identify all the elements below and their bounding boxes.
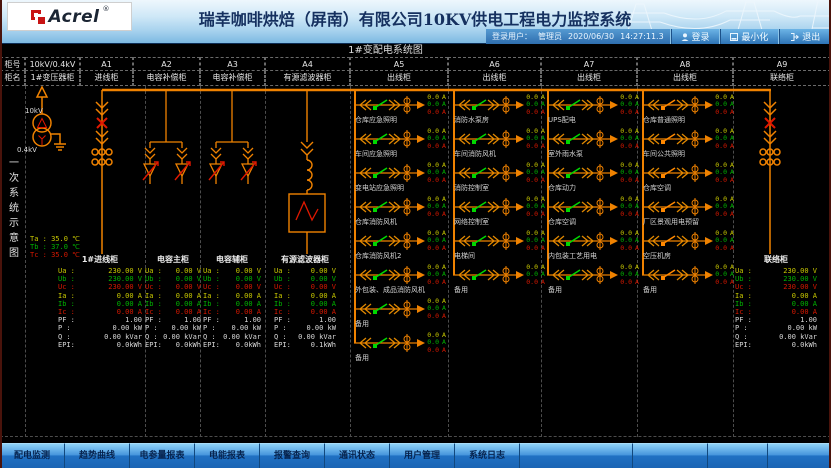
feeder-phase-values: 0.00.00.0 <box>523 128 538 150</box>
feeder-phase-units: AAA <box>730 264 734 286</box>
panel-row: PF :1.00 <box>735 316 817 324</box>
nav-tab-7[interactable]: 用户管理 <box>390 443 455 468</box>
phase-value: 0.0 <box>617 279 632 286</box>
panel-row-label: Ua : <box>145 267 162 275</box>
feeder-label: 备用 <box>454 285 468 295</box>
feeder-phase-units: AAA <box>442 298 446 320</box>
panel-row-label: Q : <box>735 333 748 341</box>
panel-row-value: 1.00 <box>319 316 336 324</box>
feeder-label: 变电站应急照明 <box>355 183 404 193</box>
feeder-row-A6-2: 0.00.00.0AAA车间消防风机 <box>453 129 549 161</box>
feeder-label: 备用 <box>548 285 562 295</box>
feeder-row-A6-4: 0.00.00.0AAA网络控制室 <box>453 197 549 229</box>
feeder-label: 备用 <box>355 353 369 363</box>
feeder-label: 仓库动力 <box>548 183 576 193</box>
phase-value: 0.0 <box>712 245 727 252</box>
feeder-phase-units: AAA <box>541 264 545 286</box>
phase-value: 0.0 <box>523 143 538 150</box>
feeder-phase-units: AAA <box>635 128 639 150</box>
panel-row: Ib :0.00 A <box>145 300 201 308</box>
panel-row-label: PF : <box>203 316 220 324</box>
panel-row-value: 1.00 <box>800 316 817 324</box>
panel-row: Ic :0.00 A <box>203 308 261 316</box>
panel-row: Ub :0.00 V <box>274 275 336 283</box>
phase-unit: A <box>730 279 734 286</box>
phase-unit: A <box>730 177 734 184</box>
feeder-row-A5-6: 0.00.00.0AAA外包装、成品消防风机 <box>354 265 450 297</box>
cabinet-no-A3: A3 <box>200 57 265 71</box>
feeder-phase-values: 0.00.00.0 <box>712 264 727 286</box>
header: Acrel ® 瑞幸咖啡烘焙（屏南）有限公司10KV供电工程电力监控系统 登录用… <box>0 0 831 44</box>
panel-row-label: Ub : <box>58 275 75 283</box>
panel-row-label: EPI: <box>203 341 220 349</box>
phase-unit: A <box>442 347 446 354</box>
phase-unit: A <box>635 109 639 116</box>
cabinet-name-A4: 有源滤波器柜 <box>265 71 350 86</box>
feeder-phase-units: AAA <box>635 196 639 218</box>
panel-row: Ib :0.00 A <box>203 300 261 308</box>
panel-row-value: 0.00 kW <box>112 324 142 332</box>
minimize-button-label: 最小化 <box>741 30 768 43</box>
cabinet-no-A4: A4 <box>265 57 350 71</box>
feeder-phase-values: 0.00.00.0 <box>424 332 439 354</box>
feeder-phase-values: 0.00.00.0 <box>424 162 439 184</box>
panel-row-label: PF : <box>735 316 752 324</box>
panel-row-value: 0.00 V <box>176 283 201 291</box>
panel-row: Ib :0.00 A <box>274 300 336 308</box>
feeder-phase-units: AAA <box>730 94 734 116</box>
nav-tab-empty-10[interactable] <box>633 443 708 468</box>
left-edge-frame <box>0 0 2 468</box>
panel-P2: 电容主柜Ua :0.00 VUb :0.00 VUc :0.00 VIa :0.… <box>145 254 201 349</box>
feeder-row-A6-6: 0.00.00.0AAA备用 <box>453 265 549 297</box>
phase-value: 0.0 <box>617 211 632 218</box>
panel-row: EPI:0.0kWh <box>735 341 817 349</box>
feeder-phase-values: 0.00.00.0 <box>424 94 439 116</box>
feeder-row-A7-1: 0.00.00.0AAAUPS配电 <box>547 95 643 127</box>
phase-value: 0.0 <box>712 109 727 116</box>
phase-value: 0.0 <box>424 143 439 150</box>
panel-row-value: 1.00 <box>184 316 201 324</box>
feeder-phase-values: 0.00.00.0 <box>523 264 538 286</box>
feeder-phase-units: AAA <box>541 230 545 252</box>
feeder-row-A6-3: 0.00.00.0AAA消防控制室 <box>453 163 549 195</box>
phase-value: 0.0 <box>523 245 538 252</box>
panel-row-value: 0.00 A <box>176 308 201 316</box>
feeder-row-A8-4: 0.00.00.0AAA厂区景观用电预留 <box>642 197 738 229</box>
panel-row-value: 230.00 V <box>783 275 817 283</box>
feeder-row-A8-5: 0.00.00.0AAA空压机房 <box>642 231 738 263</box>
cabinet-name-header: 柜名 <box>0 71 25 86</box>
feeder-label: 外包装、成品消防风机 <box>355 285 425 295</box>
feeder-phase-units: AAA <box>730 128 734 150</box>
panel-row: EPI:0.0kWh <box>58 341 142 349</box>
panel-row-label: Ua : <box>58 267 75 275</box>
panel-row-value: 0.00 kVar <box>163 333 201 341</box>
nav-tab-4[interactable]: 电能报表 <box>195 443 260 468</box>
phase-value: 0.0 <box>523 211 538 218</box>
panel-row: Uc :0.00 V <box>145 283 201 291</box>
panel-row-value: 0.00 A <box>792 292 817 300</box>
panel-row-value: 0.00 A <box>176 300 201 308</box>
panel-title: 电容主柜 <box>145 254 201 265</box>
panel-row-value: 0.00 V <box>176 275 201 283</box>
panel-row: PF :1.00 <box>58 316 142 324</box>
panel-row-value: 0.00 kW <box>787 324 817 332</box>
feeder-row-A8-3: 0.00.00.0AAA仓库空调 <box>642 163 738 195</box>
panel-row: Ub :230.00 V <box>735 275 817 283</box>
capacitor-bank-symbol-a3 <box>216 90 248 142</box>
feeder-row-A5-7: 0.00.00.0AAA备用 <box>354 299 450 331</box>
feeder-label: 仓库空调 <box>643 183 671 193</box>
nav-tab-2[interactable]: 趋势曲线 <box>65 443 130 468</box>
panel-row-value: 1.00 <box>244 316 261 324</box>
panel-P4: 有源滤波器柜Ua :0.00 VUb :0.00 VUc :0.00 VIa :… <box>274 254 336 349</box>
transformer-symbol: 10kV 0.4kV <box>17 87 66 154</box>
panel-P1: 1#进线柜Ua :230.00 VUb :230.00 VUc :230.00 … <box>58 254 142 349</box>
feeder-row-A5-8: 0.00.00.0AAA备用 <box>354 333 450 365</box>
panel-row-label: Ub : <box>203 275 220 283</box>
nav-tab-1[interactable]: 配电监测 <box>0 443 65 468</box>
nav-tab-empty-9[interactable] <box>520 443 633 468</box>
minimize-icon <box>730 33 738 41</box>
panel-row-label: Ib : <box>58 300 75 308</box>
panel-row-label: Q : <box>145 333 158 341</box>
panel-row-label: Q : <box>58 333 71 341</box>
brand-registered-mark: ® <box>102 5 109 13</box>
phase-value: 0.0 <box>617 245 632 252</box>
cabinet-name-A6: 出线柜 <box>448 71 541 86</box>
panel-row: Ib :0.00 A <box>735 300 817 308</box>
panel-row-label: Ua : <box>274 267 291 275</box>
panel-row: P :0.00 kW <box>203 324 261 332</box>
nav-tab-3[interactable]: 电参量报表 <box>130 443 195 468</box>
phase-unit: A <box>442 143 446 150</box>
panel-row: Ia :0.00 A <box>735 292 817 300</box>
nav-tab-empty-11[interactable] <box>708 443 768 468</box>
feeder-label: UPS配电 <box>548 115 576 125</box>
feeder-row-A7-6: 0.00.00.0AAA备用 <box>547 265 643 297</box>
nav-tab-empty-12[interactable] <box>768 443 831 468</box>
panel-row-value: 0.00 V <box>311 267 336 275</box>
panel-row-label: Uc : <box>58 283 75 291</box>
feeder-label: 空压机房 <box>643 251 671 261</box>
cabinet-name-A7: 出线柜 <box>541 71 637 86</box>
panel-row-label: P : <box>735 324 748 332</box>
exit-icon <box>790 33 799 41</box>
phase-unit: A <box>635 245 639 252</box>
panel-row-value: 0.00 A <box>117 292 142 300</box>
panel-row: P :0.00 kW <box>145 324 201 332</box>
panel-row: Uc :0.00 V <box>274 283 336 291</box>
cabinet-no-A5: A5 <box>350 57 448 71</box>
feeder-label: 消防控制室 <box>454 183 489 193</box>
feeder-phase-units: AAA <box>541 94 545 116</box>
panel-row: Uc :230.00 V <box>58 283 142 291</box>
phase-unit: A <box>730 109 734 116</box>
minimize-button[interactable]: 最小化 <box>719 29 778 44</box>
panel-row-value: 230.00 V <box>783 283 817 291</box>
panel-row: PF :1.00 <box>274 316 336 324</box>
panel-row: Ia :0.00 A <box>58 292 142 300</box>
panel-P3: 电容辅柜Ua :0.00 VUb :0.00 VUc :0.00 VIa :0.… <box>203 254 261 349</box>
nav-tab-8[interactable]: 系统日志 <box>455 443 520 468</box>
panel-row-value: 0.00 A <box>117 300 142 308</box>
panel-row-label: Ia : <box>145 292 162 300</box>
phase-value: 0.0 <box>424 347 439 354</box>
phase-unit: A <box>730 143 734 150</box>
cabinet-name-A3: 电容补偿柜 <box>200 71 265 86</box>
feeder-label: 消防水泵房 <box>454 115 489 125</box>
feeder-phase-values: 0.00.00.0 <box>712 162 727 184</box>
panel-row: Uc :230.00 V <box>735 283 817 291</box>
one-line-diagram: 一次系统示意图 <box>0 86 831 437</box>
panel-row-value: 0.00 A <box>236 300 261 308</box>
tie-breaker-symbol <box>760 90 780 254</box>
panel-row-value: 0.00 V <box>236 267 261 275</box>
feeder-phase-units: AAA <box>442 264 446 286</box>
panel-title: 有源滤波器柜 <box>274 254 336 265</box>
feeder-phase-units: AAA <box>635 264 639 286</box>
feeder-phase-units: AAA <box>541 128 545 150</box>
diagram-title: 1#变配电系统图 <box>348 45 483 56</box>
panel-row-label: PF : <box>58 316 75 324</box>
feeder-label: 仓库消防风机 <box>355 217 397 227</box>
panel-row: Uc :0.00 V <box>203 283 261 291</box>
panel-row-label: PF : <box>145 316 162 324</box>
panel-row-label: Ib : <box>145 300 162 308</box>
phase-value: 0.0 <box>523 109 538 116</box>
panel-row: Ub :0.00 V <box>145 275 201 283</box>
feeder-phase-units: AAA <box>635 230 639 252</box>
panel-row-value: 0.00 kW <box>171 324 201 332</box>
feeder-phase-units: AAA <box>730 162 734 184</box>
app-window: Acrel ® 瑞幸咖啡烘焙（屏南）有限公司10KV供电工程电力监控系统 登录用… <box>0 0 831 468</box>
feeder-phase-values: 0.00.00.0 <box>523 94 538 116</box>
panel-row-label: Ia : <box>203 292 220 300</box>
feeder-phase-values: 0.00.00.0 <box>424 128 439 150</box>
login-user-name: 管理员 <box>538 31 562 42</box>
transformer-lv-label: 0.4kV <box>17 146 37 154</box>
phase-value: 0.0 <box>712 211 727 218</box>
panel-row-value: 230.00 V <box>108 283 142 291</box>
current-date: 2020/06/30 <box>568 32 614 41</box>
panel-row-label: Ib : <box>274 300 291 308</box>
phase-unit: A <box>541 279 545 286</box>
cabinet-no-A8: A8 <box>637 57 733 71</box>
panel-row-label: EPI: <box>58 341 75 349</box>
nav-tab-6[interactable]: 通讯状态 <box>325 443 390 468</box>
panel-row-label: Ic : <box>274 308 291 316</box>
phase-unit: A <box>541 211 545 218</box>
cabinet-name-A2: 电容补偿柜 <box>133 71 200 86</box>
phase-unit: A <box>635 211 639 218</box>
panel-row: Ia :0.00 A <box>145 292 201 300</box>
feeder-phase-values: 0.00.00.0 <box>523 162 538 184</box>
login-button-label: 登录 <box>692 30 710 43</box>
feeder-label: 备用 <box>355 319 369 329</box>
acrel-logo-icon <box>30 9 46 25</box>
feeder-label: 车间应急照明 <box>355 149 397 159</box>
panel-row-value: 0.0kWh <box>176 341 201 349</box>
feeder-phase-values: 0.00.00.0 <box>424 230 439 252</box>
panel-row-label: Ic : <box>145 308 162 316</box>
feeder-row-A8-1: 0.00.00.0AAA仓库普通照明 <box>642 95 738 127</box>
cabinet-table: 柜号 10kV/0.4kVA1A2A3A4A5A6A7A8A9 柜名 1#变压器… <box>0 57 831 86</box>
phase-value: 0.0 <box>712 279 727 286</box>
panel-row: P :0.00 kW <box>58 324 142 332</box>
feeder-row-A6-5: 0.00.00.0AAA电梯间 <box>453 231 549 263</box>
panel-row: Ua :0.00 V <box>203 267 261 275</box>
diagram-title-bar: 1#变配电系统图 <box>0 44 831 57</box>
panel-row: Ic :0.00 A <box>145 308 201 316</box>
panel-row: Ua :230.00 V <box>735 267 817 275</box>
panel-row-value: 0.00 kW <box>306 324 336 332</box>
panel-row: Ua :0.00 V <box>274 267 336 275</box>
panel-row: P :0.00 kW <box>735 324 817 332</box>
panel-row: Q :0.00 kVar <box>203 333 261 341</box>
panel-row: EPI:0.1kWh <box>274 341 336 349</box>
phase-unit: A <box>635 143 639 150</box>
panel-row: Ic :0.00 A <box>735 308 817 316</box>
panel-row-value: 0.00 A <box>311 292 336 300</box>
phase-value: 0.0 <box>617 143 632 150</box>
cabinet-name-T: 1#变压器柜 <box>25 71 80 86</box>
feeder-phase-values: 0.00.00.0 <box>712 128 727 150</box>
phase-unit: A <box>635 279 639 286</box>
panel-row: Ic :0.00 A <box>58 308 142 316</box>
feeder-phase-units: AAA <box>442 128 446 150</box>
phase-value: 0.0 <box>424 177 439 184</box>
panel-row-value: 0.0kWh <box>117 341 142 349</box>
panel-row: Ia :0.00 A <box>274 292 336 300</box>
incoming-breaker-symbol <box>92 90 112 254</box>
phase-unit: A <box>541 143 545 150</box>
feeder-row-A6-1: 0.00.00.0AAA消防水泵房 <box>453 95 549 127</box>
feeder-label: 仓库应急照明 <box>355 115 397 125</box>
phase-unit: A <box>541 109 545 116</box>
exit-button[interactable]: 退出 <box>778 29 831 44</box>
login-user-label: 登录用户： <box>492 31 532 42</box>
panel-row: Ua :0.00 V <box>145 267 201 275</box>
phase-value: 0.0 <box>523 177 538 184</box>
panel-row-label: Q : <box>203 333 216 341</box>
phase-unit: A <box>635 177 639 184</box>
panel-row-label: Uc : <box>203 283 220 291</box>
cabinet-name-A8: 出线柜 <box>637 71 733 86</box>
cabinet-no-A2: A2 <box>133 57 200 71</box>
phase-value: 0.0 <box>712 177 727 184</box>
panel-row: Q :0.00 kVar <box>735 333 817 341</box>
feeder-row-A7-2: 0.00.00.0AAA室外雨水泵 <box>547 129 643 161</box>
user-bar: 登录用户： 管理员 2020/06/30 14:27:11.3 登录 最小化 <box>486 29 831 44</box>
feeder-phase-units: AAA <box>541 162 545 184</box>
cabinet-no-A6: A6 <box>448 57 541 71</box>
nav-tab-5[interactable]: 报警查询 <box>260 443 325 468</box>
feeder-row-A5-4: 0.00.00.0AAA仓库消防风机 <box>354 197 450 229</box>
phase-unit: A <box>730 211 734 218</box>
panel-row: P :0.00 kW <box>274 324 336 332</box>
feeder-phase-values: 0.00.00.0 <box>712 230 727 252</box>
feeder-label: 仓库空调 <box>548 217 576 227</box>
cabinet-no-A9: A9 <box>733 57 831 71</box>
feeder-label: 备用 <box>643 285 657 295</box>
panel-row-label: Ic : <box>203 308 220 316</box>
transformer-hv-label: 10kV <box>25 107 43 115</box>
feeder-row-A5-2: 0.00.00.0AAA车间应急照明 <box>354 129 450 161</box>
panel-row-label: Ib : <box>735 300 752 308</box>
panel-row-value: 0.00 A <box>236 292 261 300</box>
phase-value: 0.0 <box>617 177 632 184</box>
cabinet-no-T: 10kV/0.4kV <box>25 57 80 71</box>
panel-row-label: P : <box>145 324 158 332</box>
panel-row-label: Uc : <box>145 283 162 291</box>
feeder-phase-values: 0.00.00.0 <box>712 94 727 116</box>
panel-row-label: Q : <box>274 333 287 341</box>
brand-name: Acrel <box>49 7 100 27</box>
login-button[interactable]: 登录 <box>670 29 720 44</box>
panel-row-label: EPI: <box>274 341 291 349</box>
feeder-phase-values: 0.00.00.0 <box>523 196 538 218</box>
panel-row-value: 0.00 A <box>311 300 336 308</box>
panel-row-label: Ua : <box>203 267 220 275</box>
transformer-temp-row: Ta : 35.0 ℃ <box>30 235 80 243</box>
feeder-row-A8-2: 0.00.00.0AAA车间公共照明 <box>642 129 738 161</box>
feeder-phase-values: 0.00.00.0 <box>424 196 439 218</box>
phase-unit: A <box>541 245 545 252</box>
panel-row-value: 0.00 A <box>117 308 142 316</box>
panel-row: PF :1.00 <box>145 316 201 324</box>
panel-row: Ia :0.00 A <box>203 292 261 300</box>
feeder-row-A7-5: 0.00.00.0AAA内包装工艺用电 <box>547 231 643 263</box>
feeder-phase-units: AAA <box>635 94 639 116</box>
feeder-phase-values: 0.00.00.0 <box>617 128 632 150</box>
feeder-label: 车间公共照明 <box>643 149 685 159</box>
panel-row-label: Ia : <box>274 292 291 300</box>
transformer-temp-row: Tb : 37.0 ℃ <box>30 243 80 251</box>
feeder-phase-values: 0.00.00.0 <box>617 162 632 184</box>
panel-row: Q :0.00 kVar <box>274 333 336 341</box>
cabinet-no-row: 柜号 10kV/0.4kVA1A2A3A4A5A6A7A8A9 <box>0 57 831 71</box>
panel-row-label: Ub : <box>274 275 291 283</box>
feeder-row-A7-4: 0.00.00.0AAA仓库空调 <box>547 197 643 229</box>
panel-title: 1#进线柜 <box>58 254 142 265</box>
cabinet-name-row: 柜名 1#变压器柜进线柜电容补偿柜电容补偿柜有源滤波器柜出线柜出线柜出线柜出线柜… <box>0 71 831 86</box>
panel-P9: 联络柜Ua :230.00 VUb :230.00 VUc :230.00 VI… <box>735 254 817 349</box>
user-icon <box>681 33 689 41</box>
panel-row-label: Ic : <box>735 308 752 316</box>
panel-row-value: 0.00 V <box>236 283 261 291</box>
panel-row-label: PF : <box>274 316 291 324</box>
panel-row: EPI:0.0kWh <box>145 341 201 349</box>
feeder-phase-values: 0.00.00.0 <box>617 264 632 286</box>
panel-row-value: 0.00 V <box>176 267 201 275</box>
phase-value: 0.0 <box>523 279 538 286</box>
phase-value: 0.0 <box>424 279 439 286</box>
feeder-phase-values: 0.00.00.0 <box>712 196 727 218</box>
panel-row: PF :1.00 <box>203 316 261 324</box>
panel-row: Ib :0.00 A <box>58 300 142 308</box>
panel-row-label: P : <box>203 324 216 332</box>
panel-row-value: 0.00 V <box>311 283 336 291</box>
panel-row-value: 0.00 A <box>176 292 201 300</box>
feeder-phase-units: AAA <box>442 94 446 116</box>
feeder-phase-units: AAA <box>635 162 639 184</box>
panel-row-label: P : <box>274 324 287 332</box>
phase-value: 0.0 <box>424 109 439 116</box>
feeder-row-A5-1: 0.00.00.0AAA仓库应急照明 <box>354 95 450 127</box>
feeder-label: 电梯间 <box>454 251 475 261</box>
